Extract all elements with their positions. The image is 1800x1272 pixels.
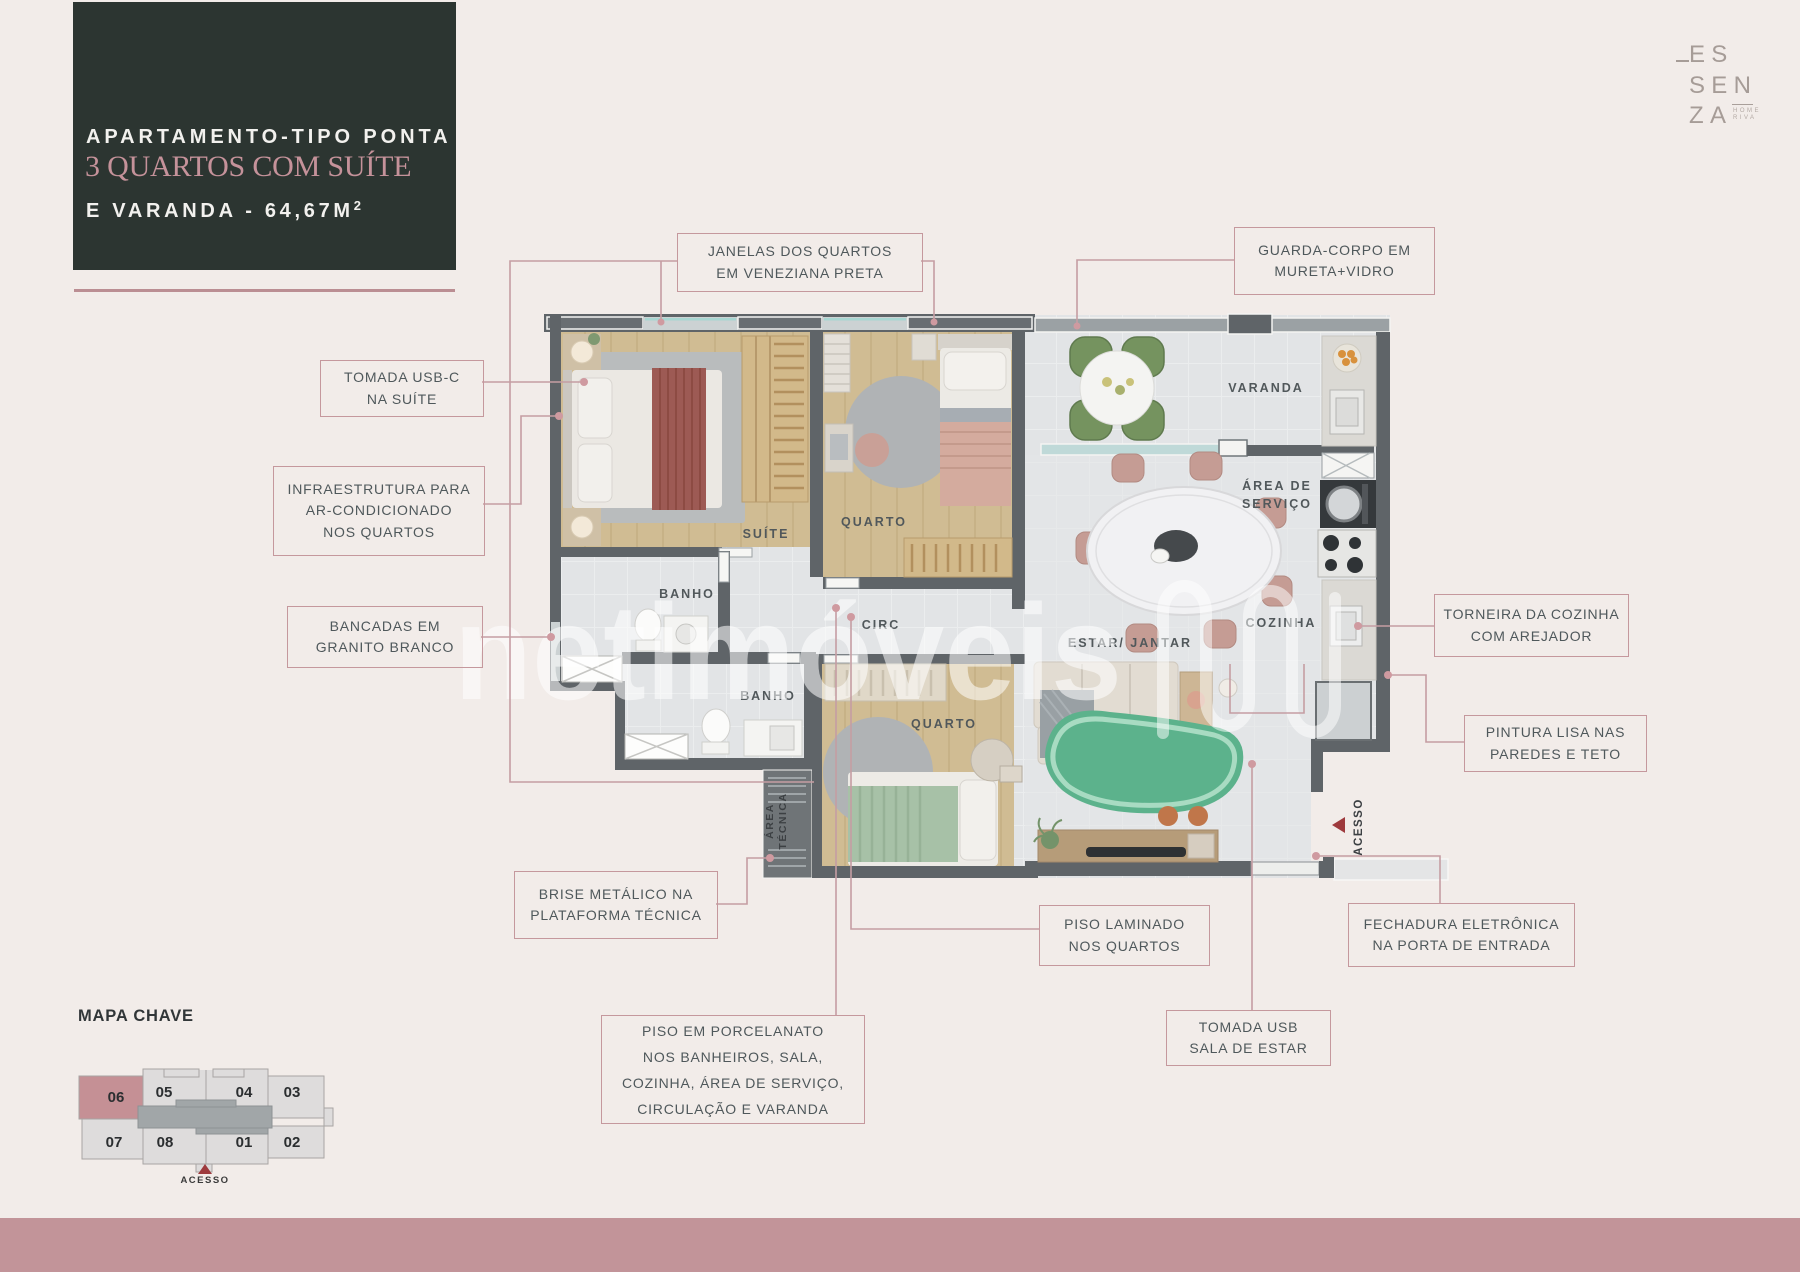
svg-text:04: 04	[236, 1084, 253, 1101]
svg-text:02: 02	[284, 1134, 301, 1151]
svg-text:VARANDA: VARANDA	[1228, 381, 1304, 395]
svg-text:07: 07	[106, 1134, 123, 1151]
svg-text:05: 05	[156, 1084, 173, 1101]
svg-text:SERVIÇO: SERVIÇO	[1242, 497, 1312, 511]
svg-text:08: 08	[157, 1134, 174, 1151]
svg-text:ACESSO: ACESSO	[1353, 798, 1365, 856]
svg-text:COZINHA: COZINHA	[1246, 616, 1317, 630]
svg-text:ACESSO: ACESSO	[180, 1175, 229, 1186]
svg-text:ÁREA DE: ÁREA DE	[1242, 478, 1312, 493]
svg-text:SUÍTE: SUÍTE	[743, 526, 790, 541]
svg-text:TÉCNICA: TÉCNICA	[776, 792, 789, 849]
svg-text:QUARTO: QUARTO	[841, 515, 907, 529]
svg-text:03: 03	[284, 1084, 301, 1101]
svg-text:ÁREA: ÁREA	[763, 803, 776, 839]
svg-text:06: 06	[108, 1089, 125, 1106]
svg-text:01: 01	[236, 1134, 253, 1151]
svg-text:netimóveis: netimóveis	[454, 576, 1122, 728]
